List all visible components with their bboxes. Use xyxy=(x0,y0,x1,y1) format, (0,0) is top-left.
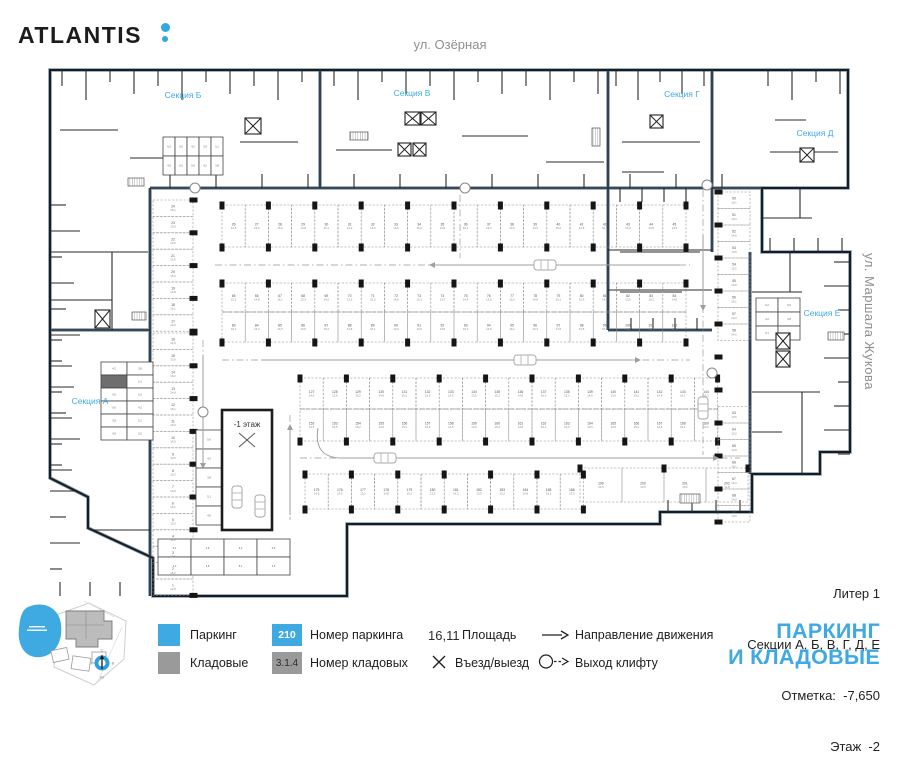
svg-text:14,8: 14,8 xyxy=(170,390,176,394)
svg-text:16,1: 16,1 xyxy=(170,407,176,411)
svg-text:13,3: 13,3 xyxy=(425,425,431,429)
car-icon xyxy=(534,260,556,270)
svg-text:16,1: 16,1 xyxy=(680,394,686,398)
stairs-icon xyxy=(680,494,700,503)
svg-text:13,5: 13,5 xyxy=(170,358,176,362)
svg-text:14,8: 14,8 xyxy=(625,327,631,331)
section-label-b: Секция Б xyxy=(165,90,202,100)
svg-text:5,6: 5,6 xyxy=(207,438,211,442)
svg-text:15,2: 15,2 xyxy=(355,394,361,398)
svg-text:6,2: 6,2 xyxy=(179,164,183,168)
svg-text:-1 этаж: -1 этаж xyxy=(234,420,261,429)
car-icon xyxy=(514,355,536,365)
svg-text:14,8: 14,8 xyxy=(170,290,176,294)
svg-text:16,1: 16,1 xyxy=(680,425,686,429)
legend-parking-number-swatch: 210 xyxy=(272,624,302,646)
svg-text:3,8: 3,8 xyxy=(206,564,210,568)
parking-grid xyxy=(101,137,800,598)
legend-area-value: 16,11 xyxy=(428,628,460,643)
info-elevation: Отметка: -7,650 xyxy=(747,687,880,704)
lake-caption-line xyxy=(29,626,45,627)
svg-text:14,5: 14,5 xyxy=(602,298,608,302)
svg-text:13,3: 13,3 xyxy=(672,327,678,331)
minimap[interactable]: С В Ю З xyxy=(14,597,139,697)
car-icon xyxy=(374,453,396,463)
svg-text:13,3: 13,3 xyxy=(569,492,575,496)
lake-caption-line xyxy=(27,630,47,631)
svg-text:13,3: 13,3 xyxy=(731,217,737,221)
svg-text:14,5: 14,5 xyxy=(598,485,604,489)
svg-text:13,3: 13,3 xyxy=(440,298,446,302)
svg-text:13,5: 13,5 xyxy=(254,226,260,230)
svg-text:15,2: 15,2 xyxy=(277,226,283,230)
svg-text:5,1: 5,1 xyxy=(215,145,219,149)
svg-text:15,2: 15,2 xyxy=(494,425,500,429)
svg-text:13,3: 13,3 xyxy=(579,298,585,302)
svg-text:13,5: 13,5 xyxy=(672,226,678,230)
svg-text:16,1: 16,1 xyxy=(509,327,515,331)
svg-text:13,5: 13,5 xyxy=(486,298,492,302)
svg-text:14,5: 14,5 xyxy=(324,298,330,302)
svg-text:14,8: 14,8 xyxy=(383,492,389,496)
svg-text:13,3: 13,3 xyxy=(430,492,436,496)
svg-text:14,5: 14,5 xyxy=(448,425,454,429)
svg-text:3,8: 3,8 xyxy=(787,317,791,321)
svg-text:14,8: 14,8 xyxy=(731,448,737,452)
section-label-g: Секция Г xyxy=(664,89,700,99)
storage-room-selected[interactable] xyxy=(101,375,127,388)
svg-text:14,8: 14,8 xyxy=(378,425,384,429)
svg-text:4,2: 4,2 xyxy=(138,406,142,410)
svg-text:15,2: 15,2 xyxy=(648,298,654,302)
drive-lanes xyxy=(203,190,740,520)
svg-text:14,5: 14,5 xyxy=(509,226,515,230)
svg-text:15,2: 15,2 xyxy=(170,274,176,278)
svg-text:13,5: 13,5 xyxy=(332,425,338,429)
svg-text:13,5: 13,5 xyxy=(440,327,446,331)
street-label-right: ул. Маршала Жукова xyxy=(862,253,877,390)
svg-text:13,3: 13,3 xyxy=(564,425,570,429)
svg-text:С: С xyxy=(101,648,104,653)
svg-text:15,2: 15,2 xyxy=(170,571,176,575)
svg-text:3,8: 3,8 xyxy=(215,164,219,168)
svg-text:16,1: 16,1 xyxy=(277,298,283,302)
svg-text:14,5: 14,5 xyxy=(170,241,176,245)
direction-arrow-icon xyxy=(541,629,569,641)
legend-storage-number-swatch: 3.1.4 xyxy=(272,652,302,674)
svg-text:14,8: 14,8 xyxy=(170,587,176,591)
svg-text:15,2: 15,2 xyxy=(170,374,176,378)
legend-lift-exit-label: Выход клифту xyxy=(575,656,658,670)
logo-dot-icon xyxy=(161,23,170,32)
svg-text:15,2: 15,2 xyxy=(556,226,562,230)
svg-text:14,5: 14,5 xyxy=(453,492,459,496)
svg-text:14,8: 14,8 xyxy=(300,226,306,230)
svg-text:16,1: 16,1 xyxy=(170,307,176,311)
svg-text:15,2: 15,2 xyxy=(509,298,515,302)
page-title: ПАРКИНГ И КЛАДОВЫЕ xyxy=(728,618,880,670)
svg-text:4,2: 4,2 xyxy=(207,457,211,461)
svg-text:15,2: 15,2 xyxy=(682,485,688,489)
svg-text:14,8: 14,8 xyxy=(657,394,663,398)
svg-text:5,1: 5,1 xyxy=(239,564,243,568)
svg-text:13,5: 13,5 xyxy=(579,327,585,331)
floor-plan[interactable]: 2614,52713,52815,22914,83016,13113,33214… xyxy=(40,65,855,602)
svg-text:5,6: 5,6 xyxy=(191,164,195,168)
svg-text:14,5: 14,5 xyxy=(370,226,376,230)
svg-text:15,2: 15,2 xyxy=(355,425,361,429)
svg-text:16,1: 16,1 xyxy=(402,394,408,398)
svg-text:13,5: 13,5 xyxy=(532,226,538,230)
svg-text:13,5: 13,5 xyxy=(170,257,176,261)
svg-text:15,2: 15,2 xyxy=(463,327,469,331)
svg-text:6,2: 6,2 xyxy=(167,145,171,149)
svg-text:14,8: 14,8 xyxy=(523,492,529,496)
svg-text:16,1: 16,1 xyxy=(602,226,608,230)
svg-text:14,5: 14,5 xyxy=(731,332,737,336)
street-label-top: ул. Озёрная xyxy=(0,37,900,52)
svg-text:4,2: 4,2 xyxy=(203,164,207,168)
svg-text:5,6: 5,6 xyxy=(112,406,116,410)
svg-text:14,5: 14,5 xyxy=(587,425,593,429)
legend-direction-label: Направление движения xyxy=(575,628,713,642)
svg-text:15,2: 15,2 xyxy=(360,492,366,496)
svg-text:14,5: 14,5 xyxy=(648,226,654,230)
svg-text:13,5: 13,5 xyxy=(170,554,176,558)
svg-text:14,8: 14,8 xyxy=(486,327,492,331)
svg-text:4,5: 4,5 xyxy=(787,331,791,335)
svg-text:15,2: 15,2 xyxy=(731,266,737,270)
svg-text:13,5: 13,5 xyxy=(610,425,616,429)
svg-text:14,5: 14,5 xyxy=(277,327,283,331)
svg-text:4,5: 4,5 xyxy=(272,564,276,568)
svg-text:14,8: 14,8 xyxy=(393,298,399,302)
svg-text:16,1: 16,1 xyxy=(370,327,376,331)
svg-text:5,1: 5,1 xyxy=(207,495,211,499)
svg-text:14,5: 14,5 xyxy=(170,538,176,542)
svg-text:15,2: 15,2 xyxy=(499,492,505,496)
svg-text:5,6: 5,6 xyxy=(179,145,183,149)
svg-text:5,1: 5,1 xyxy=(138,380,142,384)
svg-text:13,5: 13,5 xyxy=(625,298,631,302)
svg-text:4,5: 4,5 xyxy=(112,393,116,397)
svg-text:14,8: 14,8 xyxy=(579,226,585,230)
stairs-icon xyxy=(132,312,146,320)
svg-text:14,5: 14,5 xyxy=(309,394,315,398)
svg-text:6,2: 6,2 xyxy=(138,393,142,397)
svg-text:15,2: 15,2 xyxy=(324,327,330,331)
svg-text:13,5: 13,5 xyxy=(170,456,176,460)
svg-text:15,2: 15,2 xyxy=(731,431,737,435)
svg-text:16,1: 16,1 xyxy=(416,298,422,302)
svg-text:14,8: 14,8 xyxy=(518,425,524,429)
svg-text:13,5: 13,5 xyxy=(640,485,646,489)
svg-text:5,1: 5,1 xyxy=(138,419,142,423)
svg-text:14,5: 14,5 xyxy=(556,327,562,331)
svg-text:16,1: 16,1 xyxy=(546,492,552,496)
lift-exit-marker xyxy=(198,407,208,417)
lift-exit-marker xyxy=(460,183,470,193)
svg-text:13,3: 13,3 xyxy=(564,394,570,398)
section-label-v: Секция В xyxy=(394,88,431,98)
svg-text:4,5: 4,5 xyxy=(112,432,116,436)
svg-text:4,2: 4,2 xyxy=(191,145,195,149)
svg-text:13,3: 13,3 xyxy=(703,425,709,429)
svg-text:14,5: 14,5 xyxy=(448,394,454,398)
building xyxy=(71,656,91,671)
svg-text:5,1: 5,1 xyxy=(765,331,769,335)
svg-text:15,2: 15,2 xyxy=(370,298,376,302)
svg-text:14,5: 14,5 xyxy=(309,425,315,429)
car-icon xyxy=(255,495,265,517)
svg-text:14,5: 14,5 xyxy=(416,327,422,331)
svg-text:6,2: 6,2 xyxy=(239,546,243,550)
svg-text:3,8: 3,8 xyxy=(112,419,116,423)
section-label-e: Секция Е xyxy=(804,308,841,318)
svg-text:3,8: 3,8 xyxy=(138,367,142,371)
lift-exit-marker xyxy=(707,368,717,378)
svg-text:15,2: 15,2 xyxy=(494,394,500,398)
svg-text:14,5: 14,5 xyxy=(170,440,176,444)
svg-text:14,8: 14,8 xyxy=(518,394,524,398)
legend-parking-number-label: Номер паркинга xyxy=(310,628,403,642)
svg-text:14,5: 14,5 xyxy=(731,497,737,501)
svg-text:16,1: 16,1 xyxy=(324,226,330,230)
svg-text:16,1: 16,1 xyxy=(541,394,547,398)
svg-text:13,3: 13,3 xyxy=(731,316,737,320)
svg-text:В: В xyxy=(112,661,115,666)
svg-text:16,1: 16,1 xyxy=(556,298,562,302)
svg-text:13,3: 13,3 xyxy=(254,327,260,331)
svg-text:14,5: 14,5 xyxy=(314,492,320,496)
svg-text:4,5: 4,5 xyxy=(167,164,171,168)
svg-text:14,8: 14,8 xyxy=(347,327,353,331)
svg-text:15,2: 15,2 xyxy=(416,226,422,230)
section-label-a: Секция А xyxy=(72,396,109,406)
svg-text:16,1: 16,1 xyxy=(731,299,737,303)
svg-text:13,5: 13,5 xyxy=(471,394,477,398)
svg-text:13,3: 13,3 xyxy=(170,522,176,526)
svg-text:4,2: 4,2 xyxy=(765,317,769,321)
svg-text:Ю: Ю xyxy=(100,675,104,680)
svg-text:13,5: 13,5 xyxy=(731,250,737,254)
svg-text:14,8: 14,8 xyxy=(657,425,663,429)
svg-text:13,3: 13,3 xyxy=(170,225,176,229)
svg-text:13,3: 13,3 xyxy=(532,327,538,331)
legend-storage-number-label: Номер кладовых xyxy=(310,656,408,670)
svg-text:3,8: 3,8 xyxy=(203,145,207,149)
svg-text:16,1: 16,1 xyxy=(648,327,654,331)
lift-exit-marker xyxy=(190,183,200,193)
svg-text:13,5: 13,5 xyxy=(731,415,737,419)
svg-text:14,8: 14,8 xyxy=(672,298,678,302)
direction-arrows xyxy=(203,235,718,515)
legend-parking-label: Паркинг xyxy=(190,628,237,642)
stairs-icon xyxy=(128,178,144,186)
svg-text:14,5: 14,5 xyxy=(463,298,469,302)
svg-text:13,5: 13,5 xyxy=(731,514,737,518)
svg-text:14,5: 14,5 xyxy=(731,233,737,237)
svg-text:16,1: 16,1 xyxy=(170,505,176,509)
svg-text:13,3: 13,3 xyxy=(703,394,709,398)
car-icon xyxy=(232,486,242,508)
svg-text:16,1: 16,1 xyxy=(402,425,408,429)
svg-text:6,2: 6,2 xyxy=(138,432,142,436)
info-floor: Этаж -2 xyxy=(747,738,880,755)
svg-text:14,8: 14,8 xyxy=(724,485,730,489)
legend-entrance-label: Въезд/выезд xyxy=(455,656,529,670)
svg-text:14,8: 14,8 xyxy=(170,489,176,493)
info-liter: Литер 1 xyxy=(747,585,880,602)
svg-text:4,5: 4,5 xyxy=(207,514,211,518)
stairs-icon xyxy=(350,132,368,140)
legend-area-label: Площадь xyxy=(462,628,516,642)
svg-text:13,3: 13,3 xyxy=(300,298,306,302)
car-icon xyxy=(698,397,708,419)
svg-text:5,6: 5,6 xyxy=(272,546,276,550)
svg-text:5,1: 5,1 xyxy=(173,546,177,550)
svg-text:6,2: 6,2 xyxy=(765,303,769,307)
svg-text:13,3: 13,3 xyxy=(731,481,737,485)
legend-parking-swatch xyxy=(158,624,180,646)
svg-text:14,8: 14,8 xyxy=(532,298,538,302)
svg-text:16,1: 16,1 xyxy=(731,464,737,468)
svg-text:14,8: 14,8 xyxy=(254,298,260,302)
svg-text:14,8: 14,8 xyxy=(731,283,737,287)
svg-text:5,6: 5,6 xyxy=(787,303,791,307)
svg-text:14,8: 14,8 xyxy=(440,226,446,230)
svg-text:14,5: 14,5 xyxy=(587,394,593,398)
main-building[interactable] xyxy=(66,611,112,647)
svg-text:13,5: 13,5 xyxy=(471,425,477,429)
svg-text:3,8: 3,8 xyxy=(207,476,211,480)
svg-text:13,3: 13,3 xyxy=(170,423,176,427)
svg-text:15,2: 15,2 xyxy=(602,327,608,331)
svg-text:13,5: 13,5 xyxy=(332,394,338,398)
svg-text:13,5: 13,5 xyxy=(347,298,353,302)
svg-text:4,2: 4,2 xyxy=(112,367,116,371)
svg-text:13,5: 13,5 xyxy=(393,226,399,230)
svg-text:15,2: 15,2 xyxy=(170,472,176,476)
svg-text:13,5: 13,5 xyxy=(610,394,616,398)
legend-storage-label: Кладовые xyxy=(190,656,248,670)
svg-text:4,2: 4,2 xyxy=(173,564,177,568)
svg-text:16,1: 16,1 xyxy=(407,492,413,496)
svg-text:13,3: 13,3 xyxy=(425,394,431,398)
svg-text:14,8: 14,8 xyxy=(378,394,384,398)
svg-text:16,1: 16,1 xyxy=(170,208,176,212)
svg-text:15,2: 15,2 xyxy=(634,425,640,429)
svg-text:16,1: 16,1 xyxy=(463,226,469,230)
svg-text:14,5: 14,5 xyxy=(231,226,237,230)
stairs-icon xyxy=(828,332,844,340)
svg-text:15,2: 15,2 xyxy=(231,298,237,302)
svg-text:13,3: 13,3 xyxy=(486,226,492,230)
lift-exit-marker xyxy=(702,180,712,190)
svg-text:16,1: 16,1 xyxy=(731,200,737,204)
svg-text:13,5: 13,5 xyxy=(476,492,482,496)
svg-text:13,5: 13,5 xyxy=(337,492,343,496)
svg-text:14,5: 14,5 xyxy=(170,341,176,345)
svg-text:13,3: 13,3 xyxy=(625,226,631,230)
svg-text:4,5: 4,5 xyxy=(206,546,210,550)
svg-text:15,2: 15,2 xyxy=(634,394,640,398)
svg-text:16,1: 16,1 xyxy=(231,327,237,331)
svg-text:13,5: 13,5 xyxy=(300,327,306,331)
svg-text:16,1: 16,1 xyxy=(541,425,547,429)
svg-text:13,3: 13,3 xyxy=(170,323,176,327)
lift-exit-icon xyxy=(538,653,570,670)
svg-text:13,3: 13,3 xyxy=(347,226,353,230)
stairs-icon xyxy=(592,128,600,146)
section-label-d: Секция Д xyxy=(797,128,834,138)
svg-text:13,3: 13,3 xyxy=(393,327,399,331)
entrance-x-icon xyxy=(431,654,447,670)
legend-storage-swatch xyxy=(158,652,180,674)
